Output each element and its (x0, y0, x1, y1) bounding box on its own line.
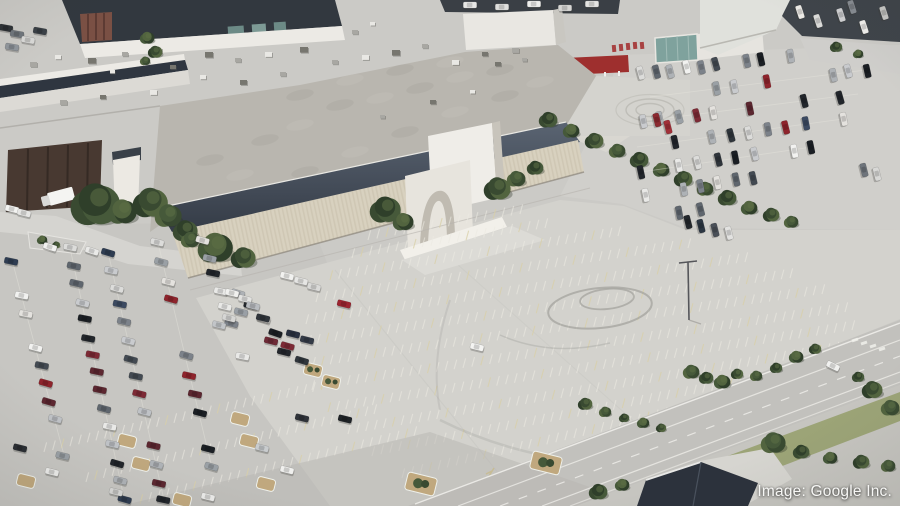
vignette (0, 0, 900, 506)
aerial-scene (0, 0, 900, 506)
aerial-photo: Image: Google Inc. (0, 0, 900, 506)
attribution-caption: Image: Google Inc. (757, 483, 892, 501)
